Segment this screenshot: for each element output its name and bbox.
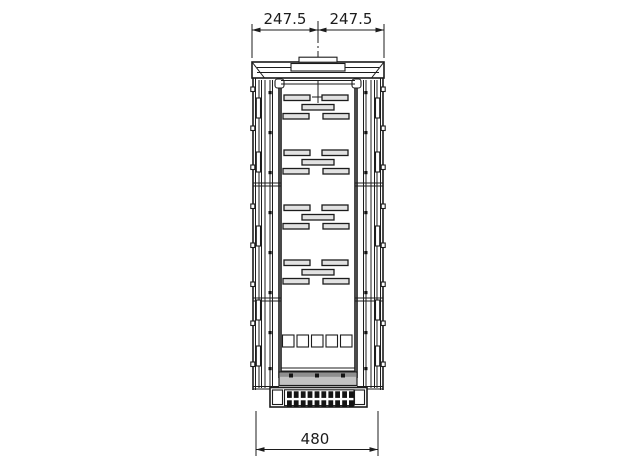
left-frame-post — [251, 78, 284, 390]
dim-arrow-bottom-right — [370, 447, 379, 452]
interior-panel — [281, 80, 355, 371]
slot-group — [283, 260, 349, 284]
bottom-rail — [279, 372, 357, 386]
plinth-end-cap-left — [273, 390, 283, 405]
slot-group — [283, 95, 349, 119]
cabinet-top-cap — [252, 57, 384, 78]
dim-arrow-center-left — [310, 28, 319, 33]
dim-arrow-center-right — [318, 28, 327, 33]
knockout-squares-row — [283, 335, 353, 347]
base-plinth — [270, 388, 367, 408]
dim-label-top-left: 247.5 — [264, 10, 307, 28]
panel-bottom-edge — [281, 368, 355, 371]
slot-group — [283, 205, 349, 229]
cap-center-plate — [291, 64, 345, 72]
dim-arrow-bottom-left — [256, 447, 265, 452]
right-frame-post — [352, 78, 385, 390]
dim-label-top-right: 247.5 — [330, 10, 373, 28]
bottom-dimension: 480 — [256, 411, 378, 456]
dim-arrow-right — [376, 28, 385, 33]
slot-group — [283, 150, 349, 174]
cap-center-tab — [299, 57, 337, 62]
technical-drawing-canvas: 247.5 247.5 — [0, 0, 624, 460]
plinth-end-cap-right — [355, 390, 365, 405]
top-dimension: 247.5 247.5 — [252, 10, 384, 58]
dim-arrow-left — [252, 28, 261, 33]
cabinet-front-view-drawing: 247.5 247.5 — [0, 0, 624, 460]
dim-label-bottom: 480 — [301, 430, 330, 448]
